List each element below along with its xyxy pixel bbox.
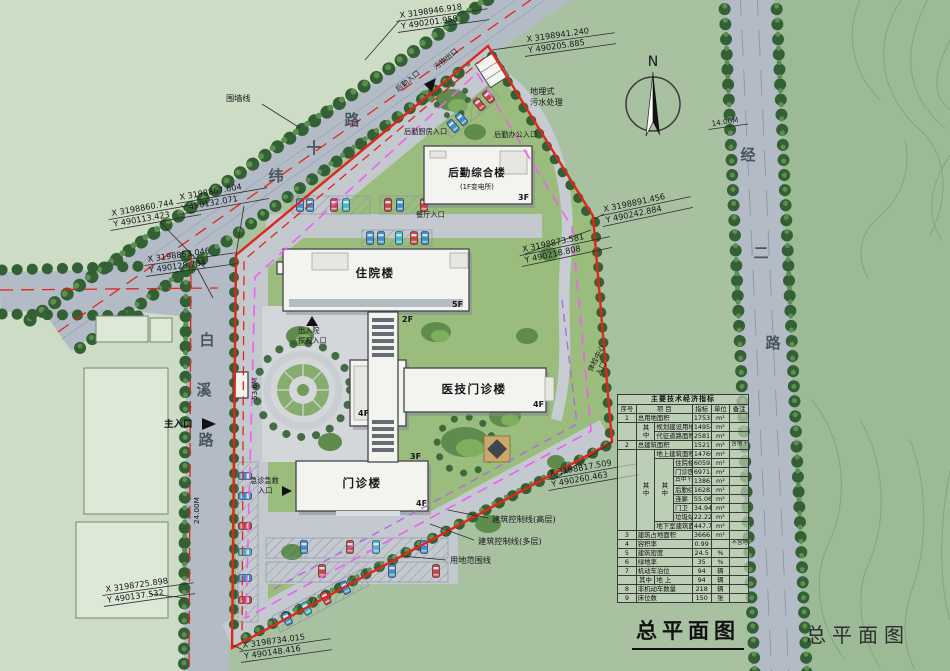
outpatient-label: 门诊楼 <box>343 476 382 490</box>
floor-2f: 2F <box>402 315 413 324</box>
road-baixi <box>206 246 210 671</box>
site-plan-sheet: N X 3198946.918 Y 490201.958 X 3198941.2… <box>0 0 950 671</box>
office-entrance-label: 后勤办公入口 <box>494 130 537 139</box>
table-row: 2总建筑面积15217.15m²含地下室 <box>618 440 749 449</box>
medtech-floors: 4F <box>533 400 544 409</box>
table-row: 其中地上建筑面积14769.41m² <box>618 449 749 458</box>
table-row: 8非机动车数量218辆 <box>618 584 749 593</box>
ctrl-high-label: 建筑控制线(高层) <box>492 514 556 524</box>
wall-line-label: 围墙线 <box>226 93 251 103</box>
table-row: 6绿地率35% <box>618 557 749 566</box>
svg-text:路: 路 <box>765 334 781 352</box>
svg-text:纬: 纬 <box>268 167 283 185</box>
table-row: 主要技术经济指标 <box>618 395 749 405</box>
table-row: 序号项 目指标单位备注 <box>618 404 749 413</box>
svg-text:溪: 溪 <box>196 381 212 399</box>
baixi-width-dim: 24.00M <box>192 497 201 524</box>
table-row: 5建筑密度24.5% <box>618 548 749 557</box>
sheet-title: 总平面图 <box>806 619 910 648</box>
building-inpatient <box>277 249 472 315</box>
svg-text:二: 二 <box>753 244 768 262</box>
logistics-sublabel: (1F变电所) <box>460 182 494 191</box>
frontage-dim: 53.6M <box>250 378 259 400</box>
svg-text:路: 路 <box>344 111 360 129</box>
table-row: 4容积率0.99不含地下室 <box>618 539 749 548</box>
main-entrance-label: 主入口 <box>164 418 193 430</box>
inpatient-label: 住院楼 <box>356 266 395 280</box>
svg-text:经: 经 <box>740 146 755 164</box>
emergency-label-1: 急诊急救 <box>250 476 279 485</box>
pond-pavilion <box>484 436 510 462</box>
circular-garden <box>267 354 339 426</box>
ctrl-multi-label: 建筑控制线(多层) <box>478 536 542 546</box>
svg-text:十: 十 <box>306 139 321 157</box>
visit-label-1: 出入院 <box>298 326 320 335</box>
table-row: 9床位数150张 <box>618 593 749 602</box>
medtech-label: 医技门诊楼 <box>442 382 507 396</box>
table-row: 其中规划建设用地14954m² <box>618 422 749 431</box>
site-plan-drawing: N X 3198946.918 Y 490201.958 X 3198941.2… <box>0 0 950 671</box>
floor-4f: 4F <box>358 409 369 418</box>
building-connector <box>368 312 398 462</box>
stats-table: 主要技术经济指标序号项 目指标单位备注1总用地面积17535m²其中规划建设用地… <box>617 394 749 603</box>
logistics-label: 后勤综合楼 <box>448 166 506 179</box>
emergency-label-2: 入口 <box>258 486 272 495</box>
kitchen-entrance-label: 后勤厨房入口 <box>404 127 447 136</box>
canteen-entrance-label: 餐厅入口 <box>416 210 445 219</box>
site-boundary-label: 用地范围线 <box>450 555 491 565</box>
outpatient-floors: 4F <box>416 499 427 508</box>
visit-label-2: 探视入口 <box>298 336 327 345</box>
sewage-label-1: 地埋式 <box>530 86 555 96</box>
north-label: N <box>648 54 658 70</box>
table-row: 其中地 上94辆 <box>618 575 749 584</box>
table-row: 7机动车泊位94辆 <box>618 566 749 575</box>
sewage-label-2: 污水处理 <box>530 97 563 107</box>
page-title: 总平面图 <box>632 615 744 650</box>
table-row: 3建筑占地面积3666.84m² <box>618 530 749 539</box>
logistics-floors: 3F <box>518 193 529 202</box>
svg-text:路: 路 <box>198 431 214 449</box>
svg-text:白: 白 <box>199 331 214 349</box>
inpatient-floors: 5F <box>452 300 463 309</box>
table-row: 1总用地面积17535m² <box>618 413 749 422</box>
floor-3f: 3F <box>410 452 421 461</box>
